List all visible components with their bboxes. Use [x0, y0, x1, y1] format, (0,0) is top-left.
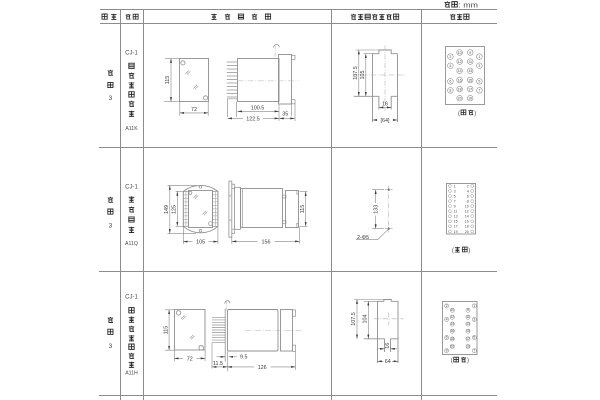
svg-text:13: 13	[468, 69, 472, 73]
svg-text:3: 3	[109, 222, 113, 229]
svg-text:19: 19	[468, 97, 472, 101]
svg-text:8: 8	[449, 89, 451, 93]
svg-text:13: 13	[454, 215, 458, 219]
svg-text:): )	[474, 111, 476, 117]
svg-text:): )	[467, 358, 469, 364]
svg-text:1: 1	[473, 304, 475, 308]
svg-text:CJ-1: CJ-1	[125, 51, 138, 57]
svg-text:10: 10	[458, 51, 462, 55]
svg-text:(: (	[451, 358, 453, 364]
svg-text:6: 6	[449, 80, 451, 84]
svg-text:6: 6	[446, 336, 448, 340]
svg-text:2-Φ5: 2-Φ5	[357, 235, 369, 241]
svg-text:(: (	[452, 248, 454, 254]
svg-text:4: 4	[467, 189, 469, 193]
svg-text:17: 17	[466, 337, 470, 341]
svg-text:(: (	[458, 111, 460, 117]
svg-text:100.5: 100.5	[251, 105, 265, 111]
svg-text:35: 35	[282, 111, 288, 117]
svg-text:105: 105	[196, 240, 205, 246]
svg-text:16: 16	[450, 329, 454, 333]
svg-text:CJ-1: CJ-1	[125, 294, 138, 300]
svg-text:156: 156	[262, 239, 271, 245]
svg-text:4: 4	[449, 64, 451, 68]
svg-text:20: 20	[458, 97, 462, 101]
svg-text:16: 16	[382, 102, 388, 108]
svg-text:1: 1	[478, 55, 480, 59]
svg-text:72: 72	[187, 356, 193, 362]
svg-text:17: 17	[468, 87, 472, 91]
svg-text:122.5: 122.5	[246, 116, 260, 122]
svg-text:115: 115	[300, 205, 306, 214]
svg-text:12: 12	[465, 210, 469, 214]
svg-text:15: 15	[466, 329, 470, 333]
svg-text:2: 2	[446, 304, 448, 308]
svg-text:7: 7	[478, 89, 480, 93]
svg-text:2: 2	[449, 55, 451, 59]
svg-text:A11K: A11K	[125, 126, 138, 132]
svg-text:126: 126	[258, 365, 267, 371]
svg-text:19: 19	[454, 230, 458, 234]
svg-text:19: 19	[466, 344, 470, 348]
svg-text:64: 64	[385, 359, 391, 365]
svg-text:[64]: [64]	[381, 118, 390, 124]
svg-text:104: 104	[363, 315, 369, 324]
svg-text:125: 125	[172, 205, 178, 214]
svg-text:14: 14	[458, 69, 462, 73]
svg-text:10: 10	[465, 205, 469, 209]
svg-text:A11Q: A11Q	[125, 241, 138, 247]
svg-text:14: 14	[465, 215, 469, 219]
svg-text:10: 10	[450, 308, 454, 312]
svg-text:2: 2	[467, 184, 469, 188]
svg-text:3: 3	[109, 343, 113, 350]
svg-text:18: 18	[458, 87, 462, 91]
svg-text:11: 11	[466, 315, 470, 319]
svg-text:133: 133	[374, 205, 380, 214]
svg-text:9: 9	[469, 51, 471, 55]
svg-text:18: 18	[465, 225, 469, 229]
svg-text:149: 149	[164, 205, 170, 214]
svg-text:15: 15	[454, 220, 458, 224]
svg-text:8: 8	[467, 200, 469, 204]
svg-text:4: 4	[446, 317, 448, 321]
svg-text:6: 6	[467, 194, 469, 198]
svg-text:12: 12	[450, 315, 454, 319]
svg-text:3: 3	[109, 95, 113, 102]
svg-text:5: 5	[473, 336, 475, 340]
svg-text:16: 16	[385, 343, 391, 349]
svg-text:8: 8	[446, 349, 448, 353]
svg-text:1: 1	[454, 184, 456, 188]
svg-text:): )	[468, 248, 470, 254]
svg-text:115: 115	[165, 76, 171, 85]
svg-text:115: 115	[163, 326, 169, 335]
svg-text:5: 5	[478, 80, 480, 84]
svg-text:A11H: A11H	[125, 370, 138, 376]
svg-text:7: 7	[454, 200, 456, 204]
svg-text:9.5: 9.5	[240, 355, 248, 361]
svg-text:3: 3	[454, 189, 456, 193]
svg-text:7: 7	[473, 349, 475, 353]
svg-text:16: 16	[465, 220, 469, 224]
svg-text:18: 18	[450, 337, 454, 341]
svg-text:105: 105	[360, 71, 366, 80]
svg-text:72: 72	[191, 107, 197, 113]
svg-text:5: 5	[454, 194, 456, 198]
svg-text:: mm: : mm	[458, 3, 478, 10]
svg-text:20: 20	[465, 230, 469, 234]
svg-text:3: 3	[478, 64, 480, 68]
svg-text:13: 13	[466, 322, 470, 326]
svg-text:11: 11	[454, 210, 458, 214]
svg-text:11.5: 11.5	[213, 361, 223, 367]
svg-text:20: 20	[450, 344, 454, 348]
svg-text:CJ-1: CJ-1	[125, 185, 138, 191]
svg-text:9: 9	[454, 205, 456, 209]
svg-text:12: 12	[458, 60, 462, 64]
svg-text:11: 11	[468, 60, 472, 64]
svg-text:107.5: 107.5	[353, 66, 359, 80]
svg-text:17: 17	[454, 225, 458, 229]
svg-text:14: 14	[450, 322, 454, 326]
svg-text:16: 16	[458, 78, 462, 82]
svg-text:107.5: 107.5	[351, 312, 357, 326]
svg-text:9: 9	[467, 308, 469, 312]
svg-text:15: 15	[468, 78, 472, 82]
svg-text:3: 3	[473, 317, 475, 321]
